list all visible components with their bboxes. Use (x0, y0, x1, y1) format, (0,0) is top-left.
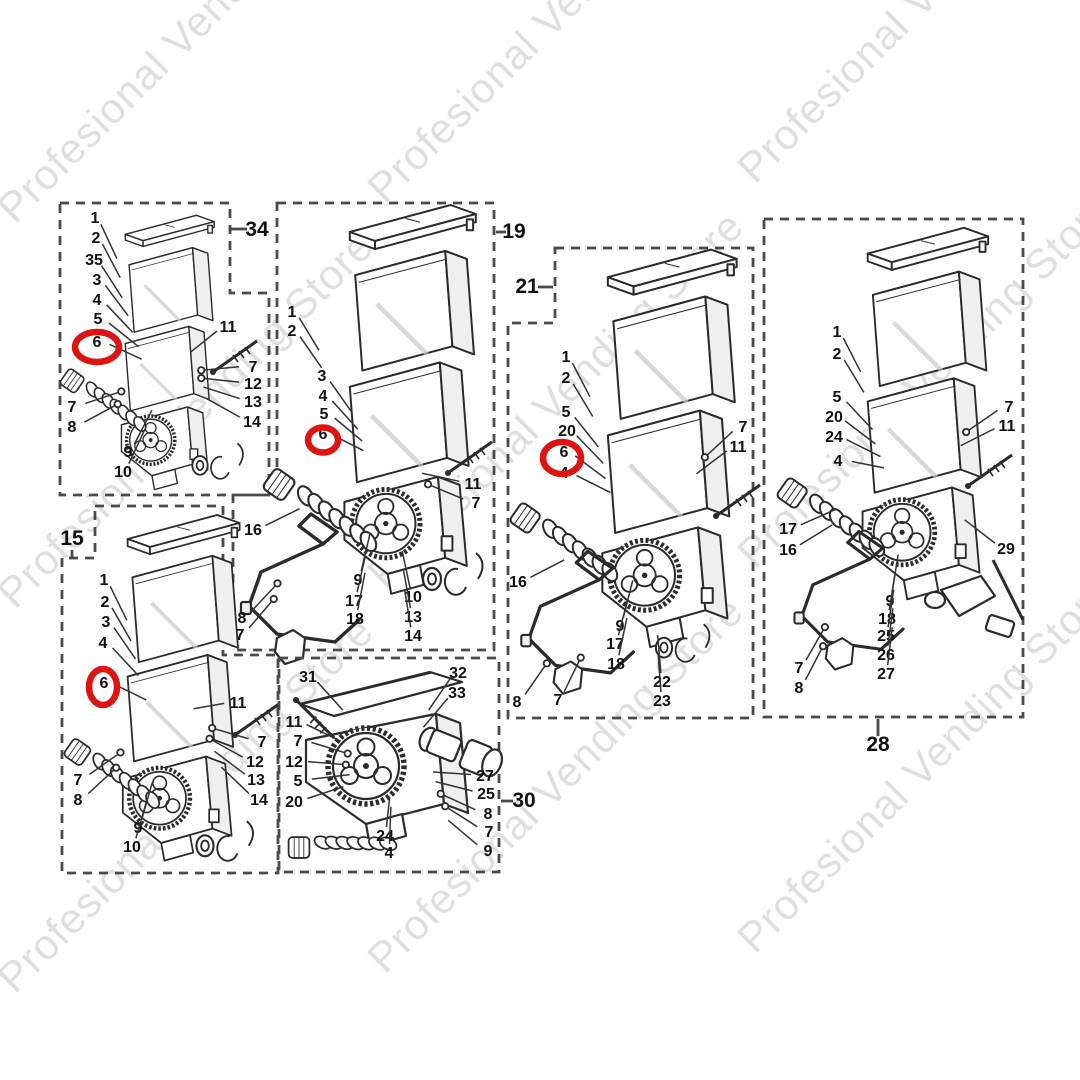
part-leader-line (266, 509, 300, 526)
part-number-6: 6 (100, 675, 109, 692)
part-number-4: 4 (385, 845, 394, 862)
panel-number: 34 (245, 218, 269, 241)
part-number-27: 27 (476, 768, 494, 785)
part-number-1: 1 (833, 324, 842, 341)
part-number-14: 14 (250, 792, 268, 809)
fastener-dot (113, 765, 119, 771)
parts-diagram: Profesional Vending Store Profesional Ve… (0, 0, 1080, 1080)
part-number-14: 14 (404, 628, 422, 645)
part-number-18: 18 (607, 656, 625, 673)
part-number-7: 7 (74, 772, 83, 789)
fastener-dot (822, 624, 828, 630)
auger-drawing (509, 502, 620, 584)
part-number-2: 2 (833, 346, 842, 363)
part-number-7: 7 (795, 660, 804, 677)
part-number-12: 12 (246, 754, 264, 771)
parts-catalog-page: Profesional Vending Store Profesional Ve… (0, 0, 1080, 1080)
part-number-13: 13 (247, 772, 265, 789)
part-number-22: 22 (653, 674, 671, 691)
part-number-13: 13 (404, 609, 422, 626)
part-number-7: 7 (258, 734, 267, 751)
part-number-3: 3 (93, 272, 102, 289)
part-number-24: 24 (376, 828, 394, 845)
part-number-2: 2 (288, 323, 297, 340)
part-number-14: 14 (243, 414, 261, 431)
part-number-25: 25 (477, 786, 495, 803)
part-leader-line (844, 360, 864, 393)
fastener-dot (209, 725, 215, 731)
part-leader-line (843, 338, 860, 372)
part-number-5: 5 (294, 773, 303, 790)
fastener-dot (544, 660, 550, 666)
fastener-dot (198, 367, 204, 373)
watermark-text: Profesional Vending Store (728, 0, 1080, 191)
part-number-11: 11 (730, 439, 747, 456)
part-number-31: 31 (299, 669, 317, 686)
part-number-5: 5 (562, 404, 571, 421)
part-number-1: 1 (562, 349, 571, 366)
part-number-16: 16 (779, 542, 797, 559)
part-number-35: 35 (85, 252, 103, 269)
part-number-11: 11 (999, 418, 1016, 435)
part-number-7: 7 (739, 419, 748, 436)
fastener-dot (343, 762, 349, 768)
part-number-20: 20 (558, 423, 576, 440)
stackA-drawing (123, 515, 240, 861)
part-number-18: 18 (346, 611, 364, 628)
part-number-7: 7 (472, 495, 481, 512)
fastener-dot (344, 750, 350, 756)
part-number-12: 12 (244, 376, 262, 393)
part-number-7: 7 (1005, 399, 1014, 416)
panel-number: 15 (60, 527, 84, 550)
lever-drawing (925, 560, 1023, 638)
part-number-2: 2 (92, 230, 101, 247)
part-leader-line (84, 404, 117, 422)
part-number-8: 8 (74, 792, 83, 809)
part-number-17: 17 (779, 521, 797, 538)
fastener-dot (438, 791, 444, 797)
part-leader-line (112, 608, 131, 641)
part-number-8: 8 (238, 610, 247, 627)
part-number-4: 4 (834, 453, 843, 470)
part-leader-line (101, 224, 117, 258)
part-number-6: 6 (560, 444, 569, 461)
fastener-dot (702, 454, 708, 460)
part-number-11: 11 (230, 695, 247, 712)
part-number-8: 8 (68, 419, 77, 436)
part-number-23: 23 (653, 693, 671, 710)
panel-15: 151234611712131478910 (60, 506, 279, 873)
part-number-16: 16 (509, 574, 527, 591)
part-number-11: 11 (286, 714, 303, 731)
part-leader-line (530, 560, 564, 577)
part-number-1: 1 (100, 572, 109, 589)
part-number-11: 11 (220, 319, 237, 336)
part-number-29: 29 (997, 541, 1015, 558)
panel-19: 19123456117169101713188714 (233, 203, 526, 664)
part-number-8: 8 (513, 694, 522, 711)
part-number-2: 2 (562, 370, 571, 387)
part-number-8: 8 (795, 680, 804, 697)
part-number-12: 12 (285, 754, 303, 771)
part-number-7: 7 (68, 399, 77, 416)
fastener-dot (963, 429, 969, 435)
panel-number: 19 (502, 220, 525, 243)
fastener-dot (198, 375, 204, 381)
fastener-dot (274, 580, 280, 586)
fastener-dot (206, 736, 212, 742)
fastener-dot (117, 749, 123, 755)
part-number-10: 10 (114, 464, 132, 481)
fastener-dot (118, 388, 124, 394)
part-number-7: 7 (294, 733, 303, 750)
part-number-5: 5 (94, 311, 103, 328)
part-number-7: 7 (554, 692, 563, 709)
part-leader-line (330, 382, 352, 413)
part-number-11: 11 (465, 476, 482, 493)
panel-number: 28 (866, 733, 890, 756)
part-number-4: 4 (319, 388, 328, 405)
part-leader-line (249, 599, 274, 628)
part-number-7: 7 (485, 824, 494, 841)
part-number-4: 4 (99, 635, 108, 652)
part-leader-line (525, 663, 547, 694)
part-number-7: 7 (249, 359, 258, 376)
part-number-18: 18 (878, 611, 896, 628)
watermark-text: Profesional Vending Store (358, 0, 752, 211)
part-number-32: 32 (449, 665, 467, 682)
part-number-27: 27 (877, 666, 895, 683)
part-number-3: 3 (318, 368, 327, 385)
part-number-3: 3 (102, 614, 111, 631)
part-leader-line (805, 646, 823, 680)
part-number-2: 2 (101, 594, 110, 611)
part-number-33: 33 (448, 685, 466, 702)
part-number-26: 26 (877, 647, 895, 664)
fastener-dot (442, 803, 448, 809)
part-leader-line (114, 628, 136, 659)
panel-number: 21 (515, 275, 539, 298)
watermark-text: Profesional Vending Store (728, 567, 1080, 961)
panel-number: 30 (512, 789, 535, 812)
part-leader-line (300, 337, 322, 368)
part-leader-line (107, 305, 133, 333)
part-leader-line (113, 648, 139, 676)
part-number-13: 13 (244, 394, 262, 411)
fastener-dot (425, 481, 431, 487)
part-number-5: 5 (833, 389, 842, 406)
part-number-20: 20 (285, 794, 303, 811)
fastener-dot (271, 596, 277, 602)
fastener-dot (578, 654, 584, 660)
part-number-10: 10 (123, 839, 141, 856)
part-number-5: 5 (320, 406, 329, 423)
part-number-6: 6 (93, 334, 102, 351)
fastener-dot (820, 643, 826, 649)
part-leader-line (110, 586, 127, 620)
part-number-24: 24 (825, 429, 843, 446)
part-number-16: 16 (244, 522, 262, 539)
part-number-20: 20 (825, 409, 843, 426)
part-leader-line (575, 417, 599, 447)
part-number-9: 9 (484, 843, 493, 860)
part-number-1: 1 (288, 304, 297, 321)
fastener-dot (115, 401, 121, 407)
part-number-4: 4 (93, 292, 102, 309)
watermark-text: Profesional Vending Store (0, 0, 382, 231)
part-number-1: 1 (91, 210, 100, 227)
part-number-8: 8 (484, 806, 493, 823)
